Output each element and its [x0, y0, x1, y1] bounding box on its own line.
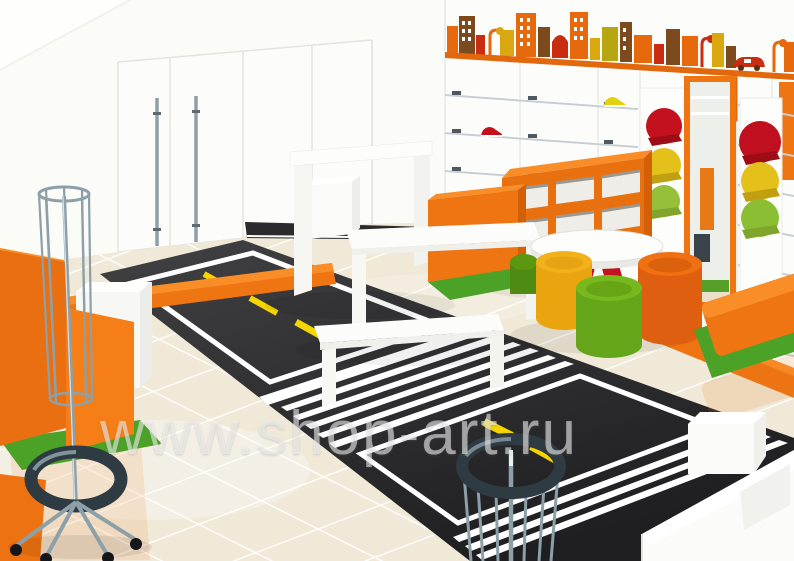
white-cube: [688, 412, 766, 474]
store-3d-render: www.shop-art.ru: [0, 0, 794, 561]
traffic-light-display-2: [739, 98, 782, 300]
bench-leg: [490, 334, 504, 389]
bench-leg: [322, 348, 336, 407]
pouf-orange: [638, 252, 702, 345]
console-leg-left: [294, 164, 312, 296]
pouf-green: [576, 275, 642, 358]
render-canvas: [0, 0, 794, 561]
white-cube-top: [688, 412, 766, 424]
arch-building: [552, 35, 568, 58]
display-cube-side: [352, 176, 360, 234]
pouf-green-back: [510, 254, 538, 294]
white-cube-front: [688, 424, 754, 474]
